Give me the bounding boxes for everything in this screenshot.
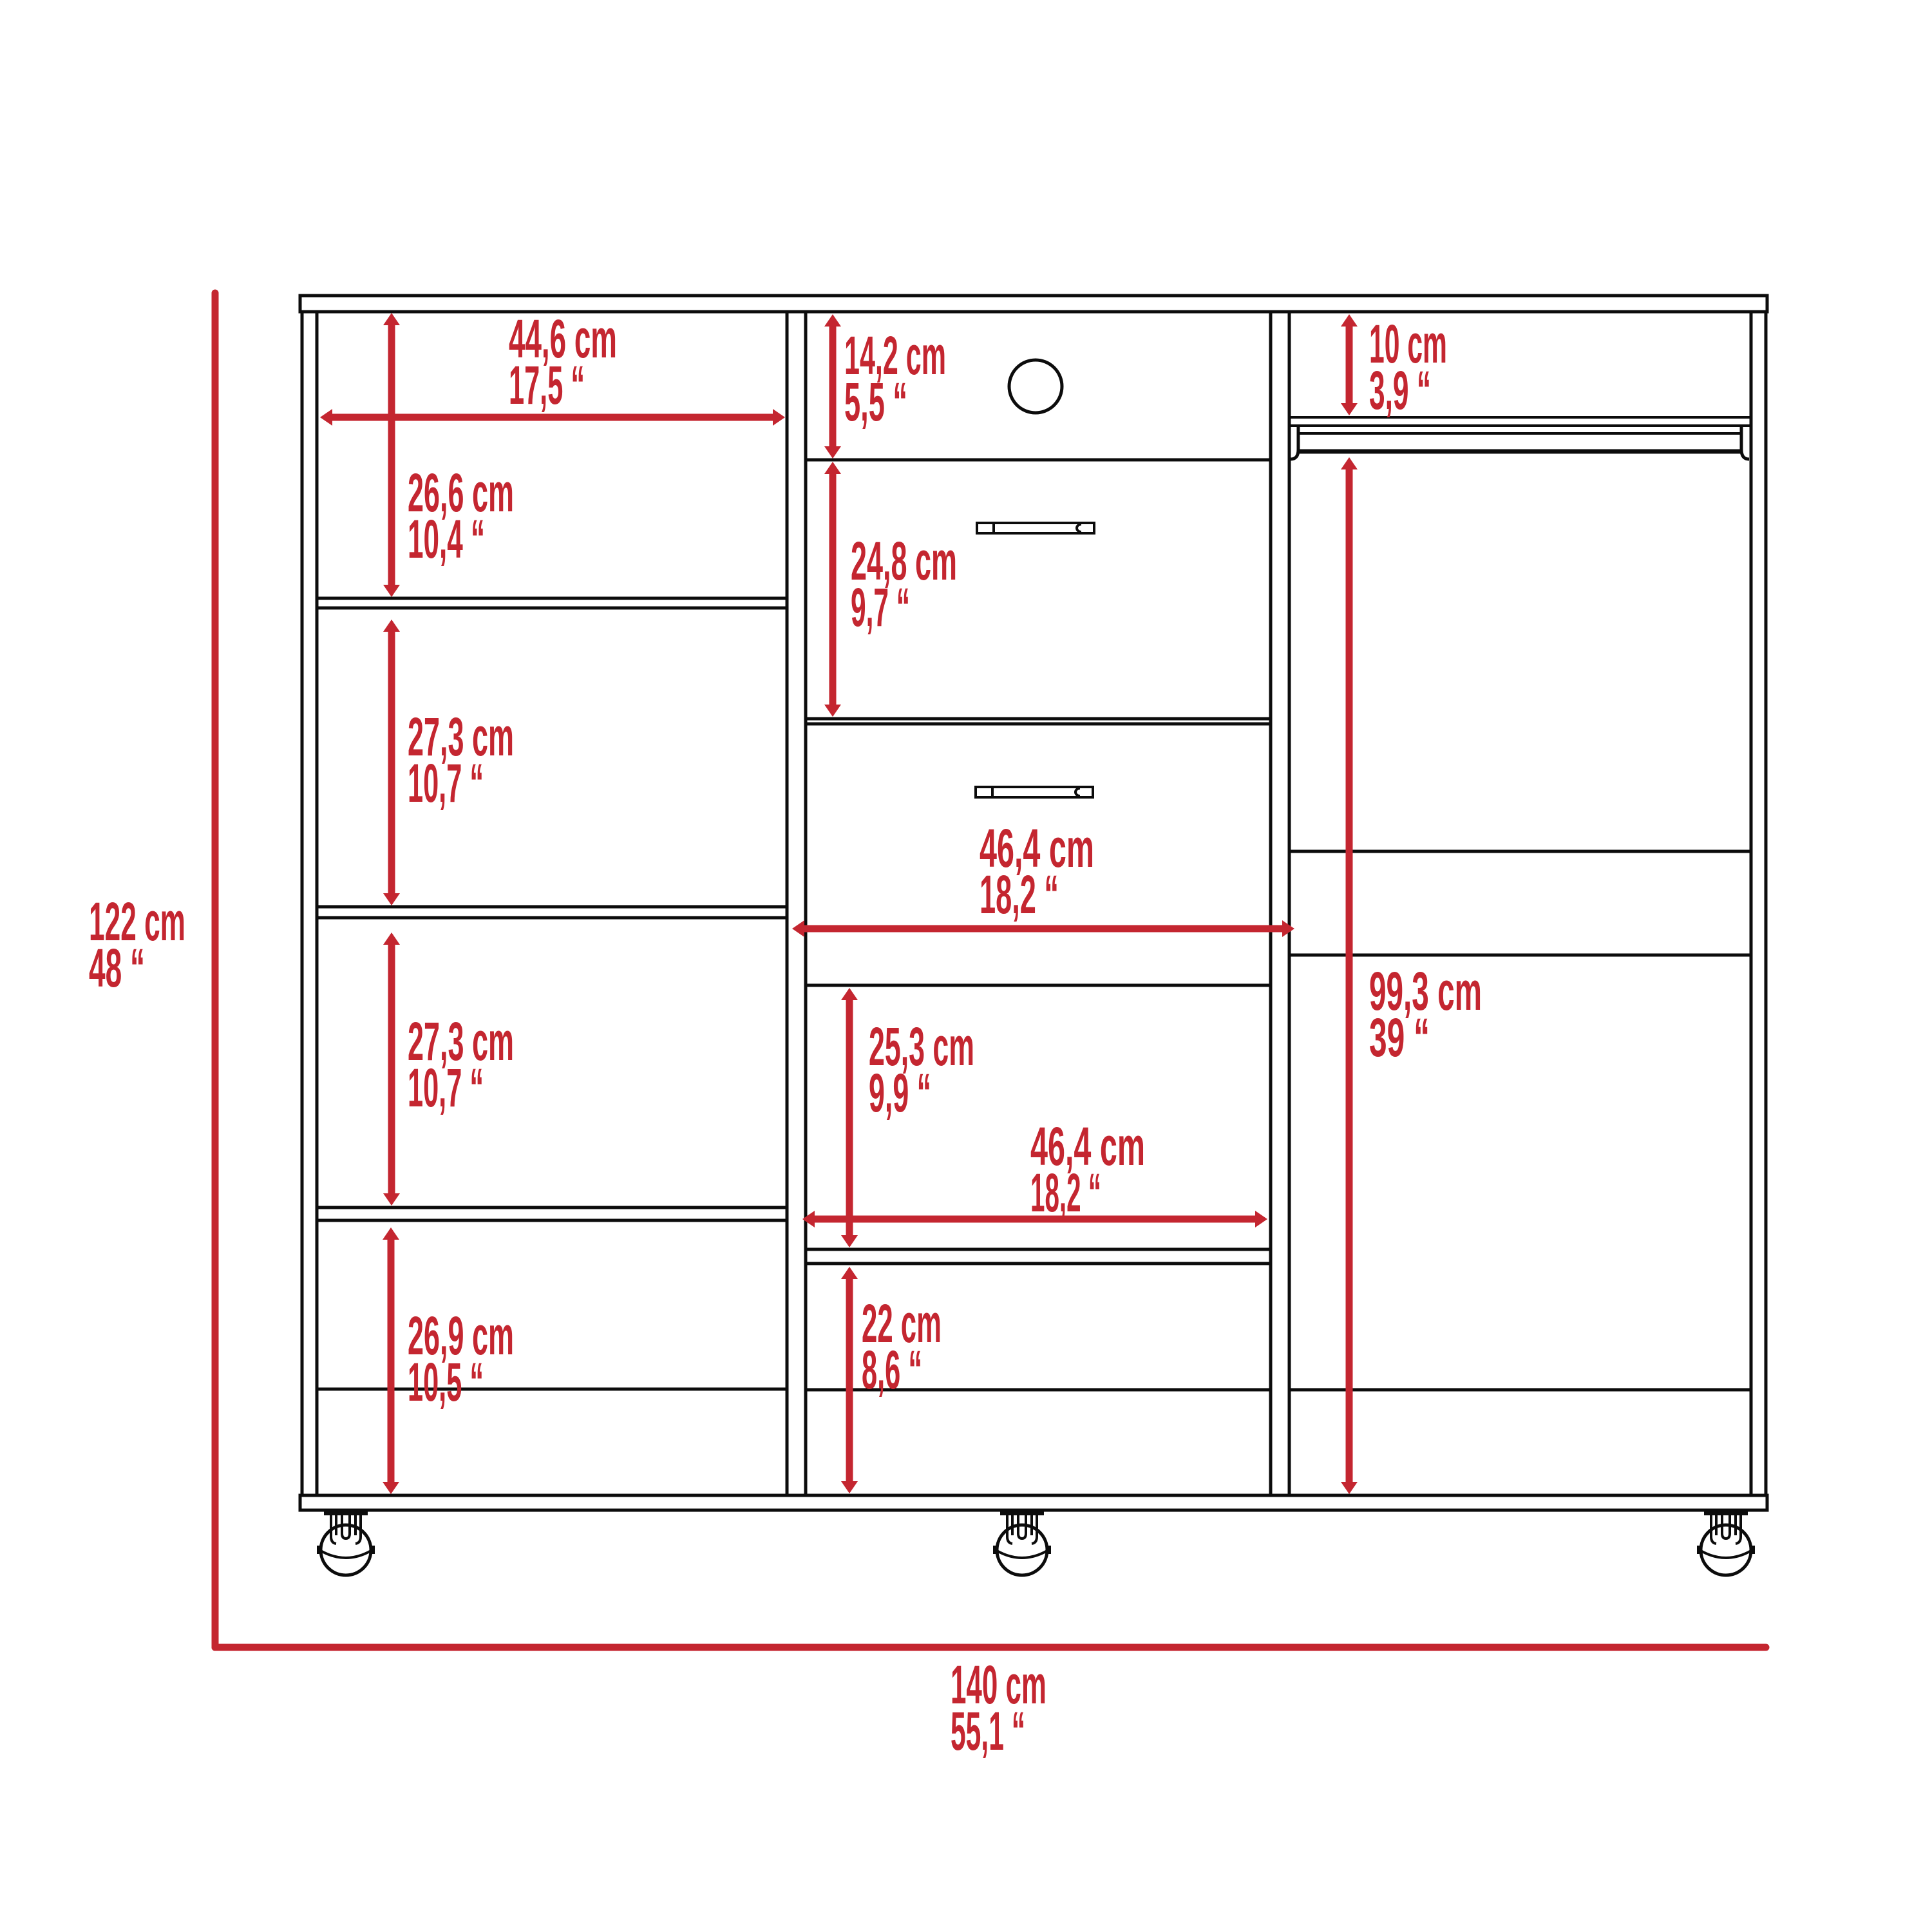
svg-text:10,4 “: 10,4 “ bbox=[408, 509, 485, 569]
svg-text:48 “: 48 “ bbox=[89, 938, 145, 998]
svg-text:55,1 “: 55,1 “ bbox=[951, 1701, 1025, 1761]
svg-text:18,2 “: 18,2 “ bbox=[1030, 1162, 1101, 1223]
svg-text:18,2 “: 18,2 “ bbox=[980, 864, 1059, 925]
svg-text:39 “: 39 “ bbox=[1369, 1007, 1430, 1068]
svg-text:17,5 “: 17,5 “ bbox=[509, 355, 585, 415]
svg-text:9,9 “: 9,9 “ bbox=[869, 1063, 931, 1123]
svg-text:8,6 “: 8,6 “ bbox=[862, 1340, 922, 1400]
svg-text:10,5 “: 10,5 “ bbox=[408, 1352, 484, 1412]
svg-text:5,5 “: 5,5 “ bbox=[844, 372, 907, 432]
svg-text:9,7 “: 9,7 “ bbox=[851, 577, 910, 638]
svg-text:10,7 “: 10,7 “ bbox=[408, 753, 484, 813]
svg-text:10,7 “: 10,7 “ bbox=[408, 1057, 484, 1118]
svg-text:3,9 “: 3,9 “ bbox=[1369, 360, 1431, 421]
